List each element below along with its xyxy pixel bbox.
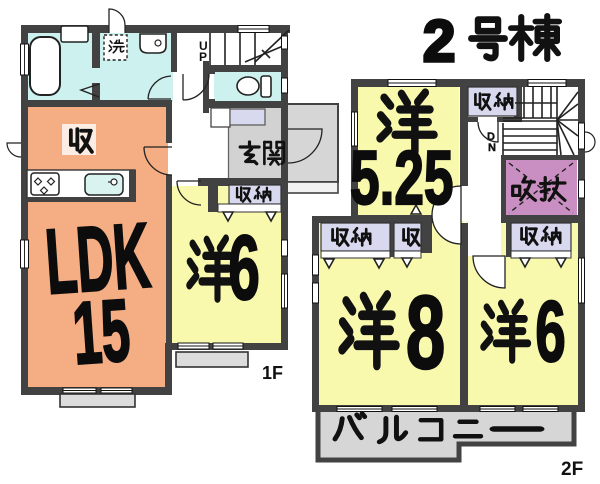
svg-text:5.25: 5.25 [350,136,454,221]
svg-text:1F: 1F [262,363,283,383]
svg-text:P: P [199,50,207,64]
svg-text:2: 2 [423,9,455,74]
svg-text:N: N [488,142,496,154]
svg-text:6: 6 [228,217,260,319]
svg-text:6: 6 [535,285,566,380]
svg-text:2F: 2F [561,459,583,480]
svg-text:8: 8 [406,273,445,390]
svg-text:15: 15 [70,282,133,384]
